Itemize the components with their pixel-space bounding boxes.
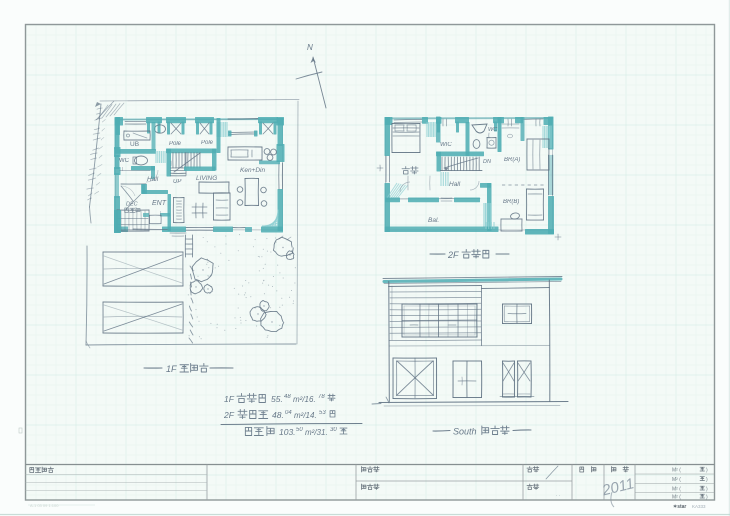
svg-text:Hall: Hall	[449, 181, 461, 188]
svg-text:Bal.: Bal.	[428, 217, 439, 224]
svg-text:Pole: Pole	[201, 140, 214, 146]
svg-text:N: N	[307, 43, 313, 52]
svg-text:l: l	[122, 167, 123, 173]
svg-text:48: 48	[284, 394, 291, 400]
svg-text:55.: 55.	[271, 394, 283, 404]
svg-text:2F: 2F	[223, 410, 235, 420]
svg-text:04: 04	[285, 410, 292, 416]
svg-text:53: 53	[319, 410, 326, 416]
svg-text:M² (: M² (	[672, 487, 681, 493]
svg-text:BR(A): BR(A)	[504, 157, 520, 163]
svg-text:103.: 103.	[279, 427, 296, 437]
svg-text:2F: 2F	[447, 250, 459, 260]
svg-text:M² (: M² (	[672, 468, 681, 474]
svg-text:48.: 48.	[272, 410, 284, 420]
svg-text:WC: WC	[119, 158, 130, 164]
svg-text:M² (: M² (	[672, 495, 681, 501]
svg-text:UP: UP	[173, 179, 181, 185]
svg-text:1F: 1F	[224, 394, 235, 404]
svg-text:WIC: WIC	[440, 142, 452, 148]
svg-text:l: l	[160, 211, 161, 217]
svg-text:A-1 03 09 1:100: A-1 03 09 1:100	[30, 503, 59, 508]
svg-text:M² (: M² (	[672, 477, 681, 483]
svg-text:WC: WC	[488, 127, 497, 133]
svg-text:. .: . .	[556, 492, 560, 498]
svg-text:m²/31.: m²/31.	[305, 428, 328, 437]
svg-text:✶star: ✶star	[673, 504, 686, 510]
svg-text:78: 78	[318, 394, 325, 400]
svg-text:m²/14.: m²/14.	[294, 411, 317, 420]
svg-text:KA333: KA333	[692, 504, 706, 509]
svg-text:South: South	[453, 427, 477, 437]
svg-text:BR(B): BR(B)	[503, 199, 519, 205]
svg-text:LIVING: LIVING	[196, 175, 217, 182]
svg-text:m²/16.: m²/16.	[293, 395, 316, 404]
svg-text:Pole: Pole	[169, 141, 182, 147]
svg-text:UB: UB	[130, 141, 139, 148]
svg-text:DEC: DEC	[126, 202, 138, 208]
svg-text:30: 30	[330, 427, 337, 433]
svg-text:50: 50	[296, 427, 303, 433]
svg-text:Ken+Din: Ken+Din	[240, 167, 265, 174]
svg-text:1F: 1F	[166, 364, 177, 374]
svg-text:ENT: ENT	[152, 200, 167, 207]
svg-text:DN: DN	[483, 159, 491, 165]
